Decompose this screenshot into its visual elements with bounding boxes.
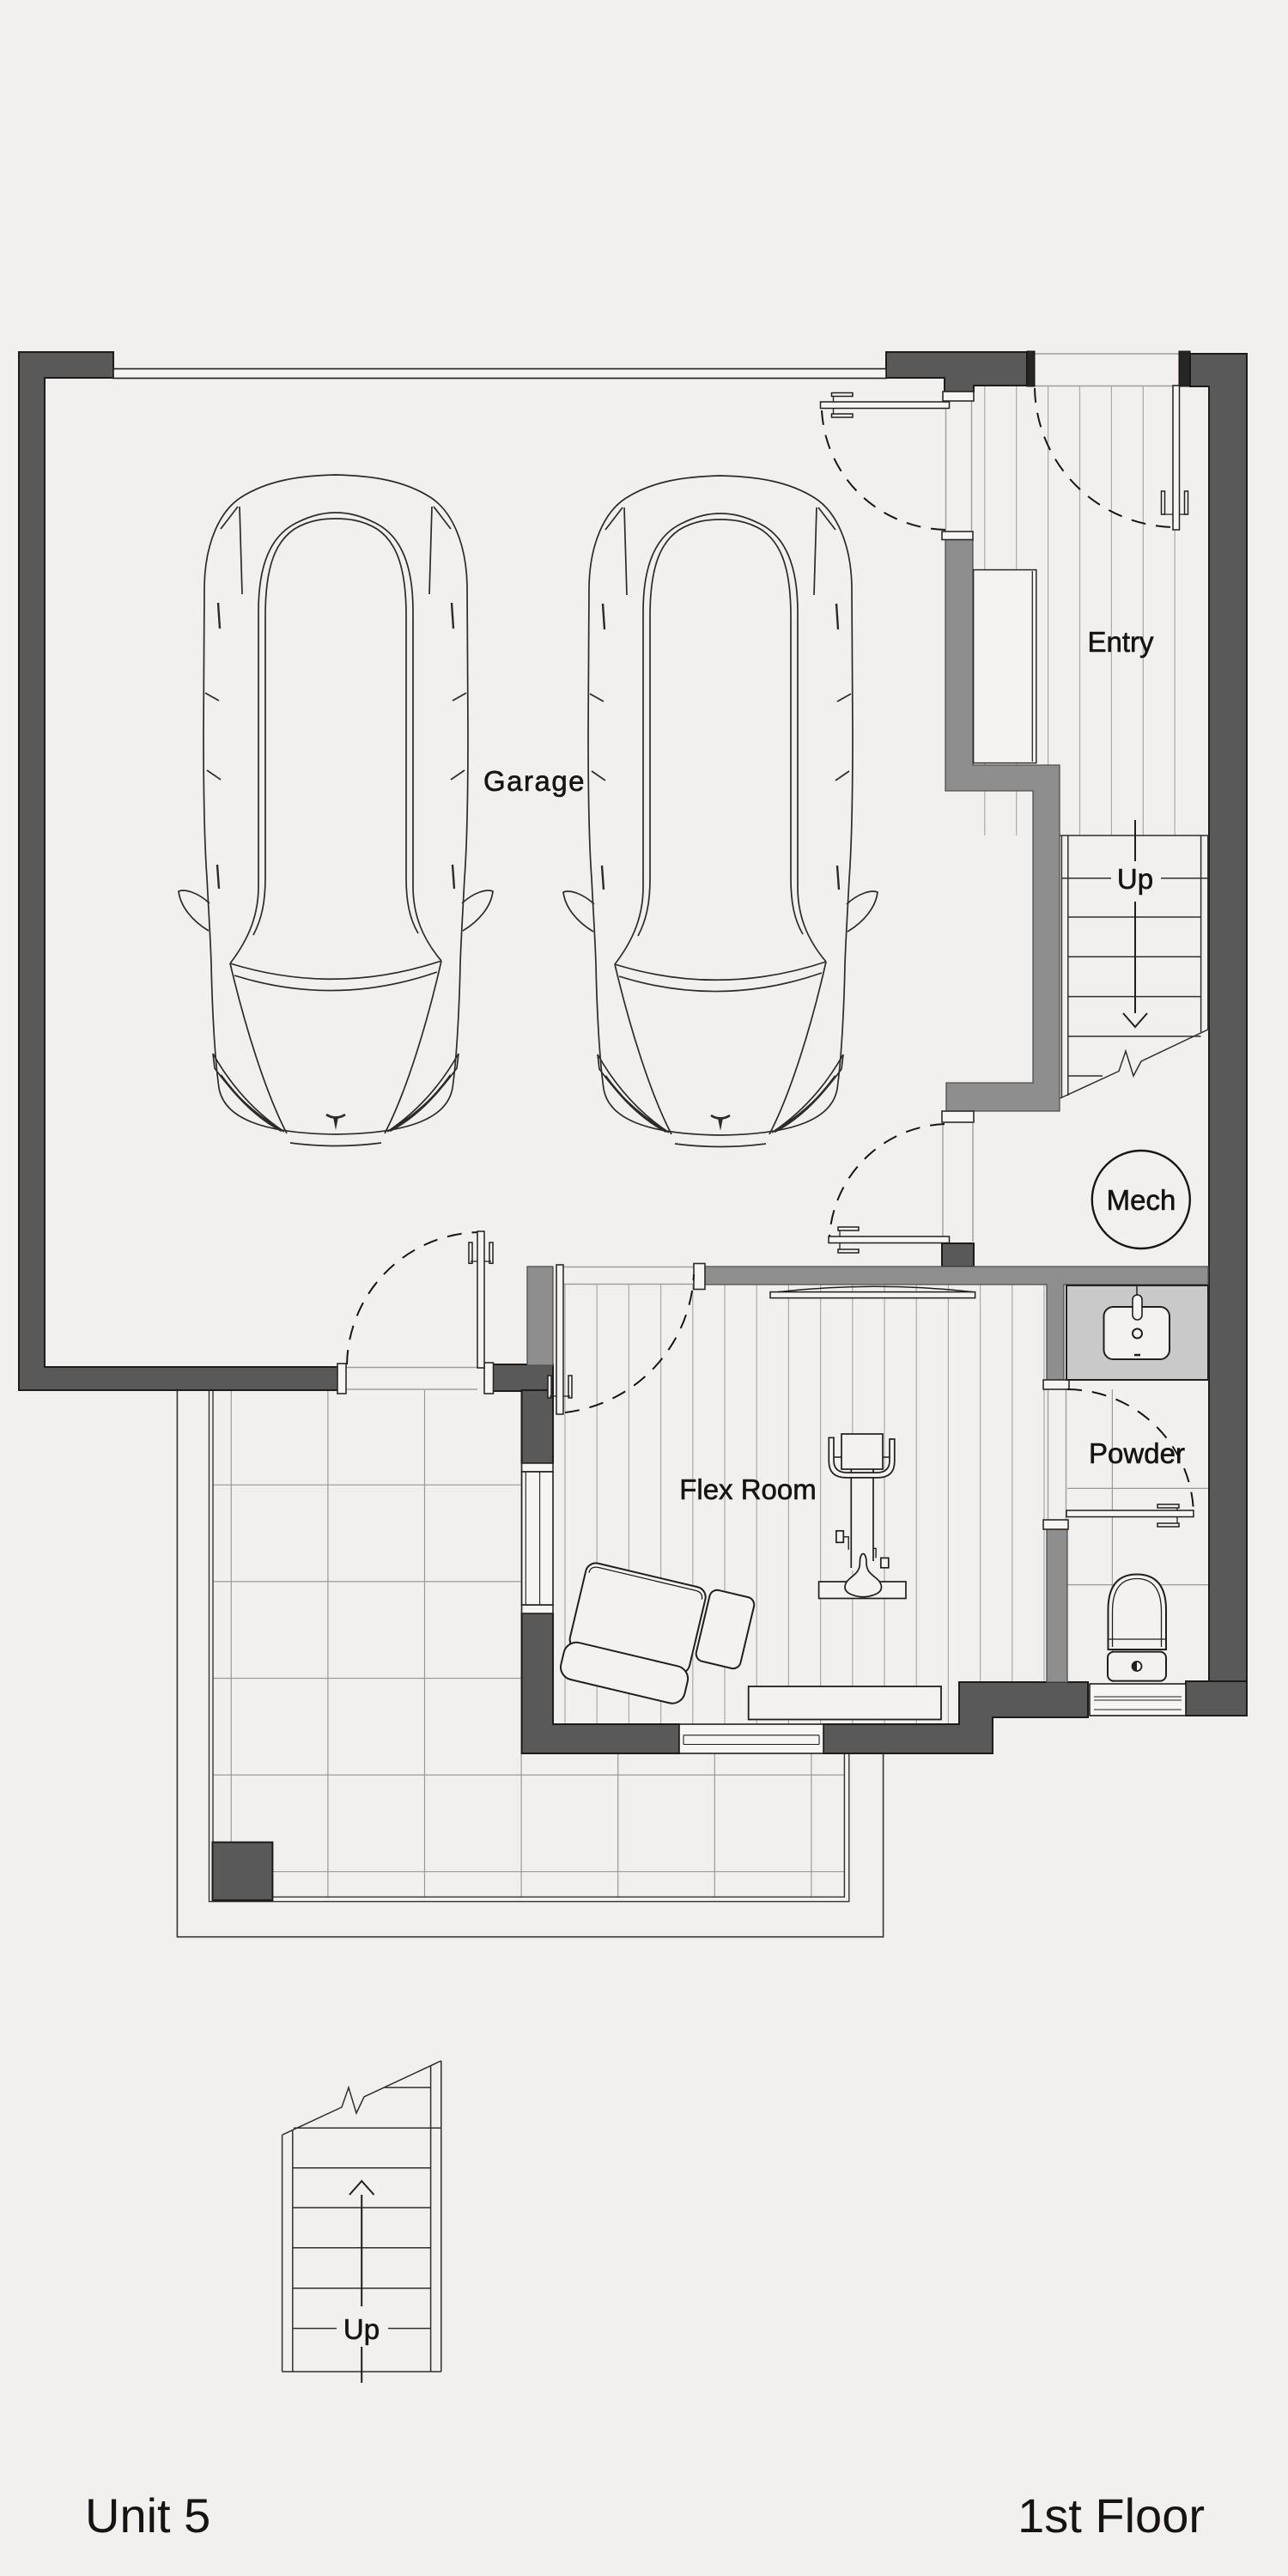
svg-text:Up: Up <box>343 2313 380 2345</box>
svg-text:Up: Up <box>1117 863 1153 895</box>
svg-text:Powder: Powder <box>1089 1437 1185 1469</box>
svg-text:Garage: Garage <box>483 765 586 797</box>
svg-text:Entry: Entry <box>1087 626 1154 658</box>
svg-text:Flex Room: Flex Room <box>679 1473 817 1505</box>
svg-text:Mech: Mech <box>1107 1184 1176 1216</box>
svg-text:1st Floor: 1st Floor <box>1018 2488 1205 2543</box>
svg-text:Unit 5: Unit 5 <box>85 2488 210 2543</box>
